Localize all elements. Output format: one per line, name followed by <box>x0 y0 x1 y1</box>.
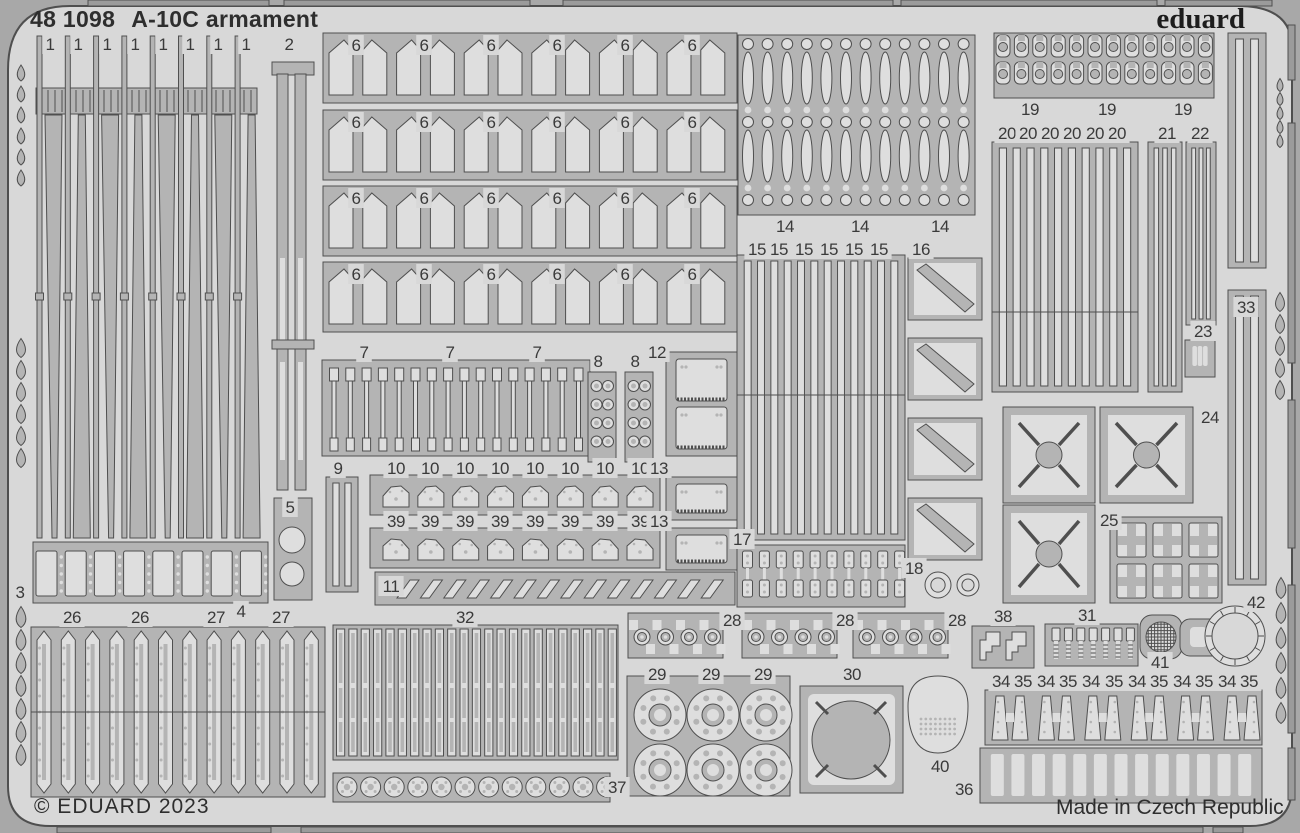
svg-text:28: 28 <box>723 611 741 630</box>
svg-text:26: 26 <box>63 608 81 627</box>
svg-text:38: 38 <box>994 607 1012 626</box>
svg-text:16: 16 <box>912 240 930 259</box>
part-6c <box>323 186 737 256</box>
part-26-27 <box>31 627 325 797</box>
svg-text:29: 29 <box>754 665 772 684</box>
made-in-note: Made in Czech Republic <box>1056 796 1284 820</box>
svg-text:10: 10 <box>421 459 439 478</box>
svg-text:37: 37 <box>608 778 626 797</box>
part-20 <box>992 142 1138 392</box>
svg-text:15: 15 <box>870 240 888 259</box>
svg-text:34: 34 <box>992 672 1010 691</box>
svg-text:34: 34 <box>1082 672 1100 691</box>
svg-text:19: 19 <box>1021 100 1039 119</box>
part-33b <box>1228 290 1266 585</box>
svg-text:10: 10 <box>456 459 474 478</box>
svg-text:6: 6 <box>621 189 630 208</box>
svg-text:10: 10 <box>631 459 649 478</box>
part-12 <box>666 352 737 456</box>
svg-text:2: 2 <box>285 35 294 54</box>
svg-text:10: 10 <box>526 459 544 478</box>
svg-text:6: 6 <box>420 265 429 284</box>
part-14 <box>738 35 975 215</box>
part-30 <box>800 686 903 793</box>
svg-text:20: 20 <box>1108 124 1126 143</box>
part-6b <box>323 110 737 180</box>
svg-text:1: 1 <box>159 35 168 54</box>
svg-text:1: 1 <box>131 35 140 54</box>
part-32 <box>333 625 618 760</box>
svg-text:14: 14 <box>851 217 869 236</box>
svg-text:39: 39 <box>421 512 439 531</box>
svg-text:1: 1 <box>46 35 55 54</box>
svg-text:10: 10 <box>561 459 579 478</box>
svg-text:6: 6 <box>352 189 361 208</box>
svg-text:6: 6 <box>352 265 361 284</box>
svg-text:6: 6 <box>487 189 496 208</box>
part-21 <box>1148 142 1182 392</box>
svg-text:6: 6 <box>688 113 697 132</box>
svg-text:27: 27 <box>207 608 225 627</box>
svg-text:34: 34 <box>1218 672 1236 691</box>
svg-text:13: 13 <box>650 459 668 478</box>
part-31 <box>1045 624 1138 666</box>
part-23 <box>1185 340 1215 377</box>
svg-text:39: 39 <box>491 512 509 531</box>
svg-text:6: 6 <box>553 189 562 208</box>
svg-text:1: 1 <box>103 35 112 54</box>
svg-text:13: 13 <box>650 512 668 531</box>
svg-text:41: 41 <box>1151 653 1169 672</box>
svg-text:5: 5 <box>286 498 295 517</box>
svg-text:33: 33 <box>1237 298 1255 317</box>
part-10 <box>370 475 660 515</box>
svg-text:28: 28 <box>948 611 966 630</box>
svg-text:6: 6 <box>553 265 562 284</box>
svg-text:20: 20 <box>1019 124 1037 143</box>
svg-text:18: 18 <box>905 559 923 578</box>
part-28 <box>628 613 951 658</box>
svg-text:7: 7 <box>360 343 369 362</box>
brand-logo: eduard <box>1156 3 1245 36</box>
svg-text:20: 20 <box>1063 124 1081 143</box>
svg-text:6: 6 <box>352 113 361 132</box>
svg-text:24: 24 <box>1201 408 1219 427</box>
part-29 <box>627 676 792 796</box>
svg-text:10: 10 <box>387 459 405 478</box>
svg-text:7: 7 <box>533 343 542 362</box>
svg-text:27: 27 <box>272 608 290 627</box>
svg-text:29: 29 <box>702 665 720 684</box>
part-6d <box>323 262 737 332</box>
svg-text:1: 1 <box>186 35 195 54</box>
part-7 <box>322 360 590 456</box>
svg-text:8: 8 <box>631 352 640 371</box>
svg-text:20: 20 <box>1041 124 1059 143</box>
svg-text:15: 15 <box>770 240 788 259</box>
part-42 <box>1205 606 1265 666</box>
svg-text:1: 1 <box>74 35 83 54</box>
svg-text:3: 3 <box>16 583 25 602</box>
svg-text:34: 34 <box>1128 672 1146 691</box>
svg-text:4: 4 <box>237 602 246 621</box>
svg-text:14: 14 <box>776 217 794 236</box>
part-13b <box>666 528 737 570</box>
svg-text:6: 6 <box>420 36 429 55</box>
svg-text:6: 6 <box>553 36 562 55</box>
svg-text:6: 6 <box>688 265 697 284</box>
svg-text:35: 35 <box>1195 672 1213 691</box>
svg-text:10: 10 <box>596 459 614 478</box>
svg-text:1: 1 <box>214 35 223 54</box>
svg-text:15: 15 <box>748 240 766 259</box>
svg-text:19: 19 <box>1098 100 1116 119</box>
svg-text:1: 1 <box>242 35 251 54</box>
part-6a <box>323 33 737 103</box>
svg-text:6: 6 <box>420 189 429 208</box>
part-19 <box>994 33 1214 98</box>
svg-text:15: 15 <box>820 240 838 259</box>
svg-text:6: 6 <box>553 113 562 132</box>
svg-text:39: 39 <box>526 512 544 531</box>
svg-text:14: 14 <box>931 217 949 236</box>
svg-text:32: 32 <box>456 608 474 627</box>
part-37 <box>333 773 617 802</box>
svg-text:39: 39 <box>561 512 579 531</box>
photoetch-fret-drawing: 1111111123526262742766666666666666666666… <box>0 0 1300 833</box>
part-15 <box>737 255 905 540</box>
svg-text:42: 42 <box>1247 593 1265 612</box>
part-3 <box>33 542 268 603</box>
svg-text:39: 39 <box>387 512 405 531</box>
svg-text:36: 36 <box>955 780 973 799</box>
svg-text:29: 29 <box>648 665 666 684</box>
svg-text:20: 20 <box>998 124 1016 143</box>
svg-text:15: 15 <box>795 240 813 259</box>
svg-text:35: 35 <box>1150 672 1168 691</box>
svg-text:34: 34 <box>1037 672 1055 691</box>
svg-text:6: 6 <box>688 189 697 208</box>
svg-text:20: 20 <box>1086 124 1104 143</box>
svg-text:34: 34 <box>1173 672 1191 691</box>
part-40 <box>908 676 968 753</box>
svg-text:11: 11 <box>383 577 400 596</box>
svg-text:23: 23 <box>1194 322 1212 341</box>
svg-text:39: 39 <box>456 512 474 531</box>
catalog-number: 48 1098 <box>30 6 115 32</box>
svg-text:25: 25 <box>1100 511 1118 530</box>
part-36 <box>980 748 1262 803</box>
svg-text:6: 6 <box>621 36 630 55</box>
part-39 <box>370 528 660 568</box>
svg-text:17: 17 <box>733 530 751 549</box>
svg-text:26: 26 <box>131 608 149 627</box>
part-13a <box>666 477 737 520</box>
svg-text:6: 6 <box>352 36 361 55</box>
svg-text:40: 40 <box>931 757 949 776</box>
svg-text:21: 21 <box>1158 124 1176 143</box>
part-33 <box>1228 33 1266 268</box>
svg-text:8: 8 <box>594 352 603 371</box>
svg-text:6: 6 <box>487 265 496 284</box>
svg-text:28: 28 <box>836 611 854 630</box>
svg-text:6: 6 <box>621 265 630 284</box>
part-11 <box>375 572 735 605</box>
svg-text:6: 6 <box>621 113 630 132</box>
svg-text:35: 35 <box>1105 672 1123 691</box>
part-22 <box>1186 142 1216 325</box>
svg-text:9: 9 <box>334 459 343 478</box>
svg-text:6: 6 <box>688 36 697 55</box>
svg-text:31: 31 <box>1078 606 1096 625</box>
part-9 <box>326 477 358 592</box>
svg-text:35: 35 <box>1014 672 1032 691</box>
sheet-title: 48 1098A-10C armament <box>30 6 318 33</box>
product-name: A-10C armament <box>131 6 318 32</box>
svg-text:7: 7 <box>446 343 455 362</box>
svg-text:39: 39 <box>596 512 614 531</box>
svg-text:39: 39 <box>631 512 649 531</box>
svg-text:19: 19 <box>1174 100 1192 119</box>
svg-text:12: 12 <box>648 343 666 362</box>
part-34-35 <box>985 690 1262 745</box>
svg-text:35: 35 <box>1240 672 1258 691</box>
copyright-note: © EDUARD 2023 <box>34 795 210 819</box>
part-38 <box>972 626 1034 668</box>
fret-sheet: 1111111123526262742766666666666666666666… <box>0 0 1300 833</box>
part-17 <box>737 545 905 607</box>
svg-text:35: 35 <box>1059 672 1077 691</box>
svg-text:15: 15 <box>845 240 863 259</box>
svg-text:30: 30 <box>843 665 861 684</box>
svg-text:6: 6 <box>487 36 496 55</box>
svg-text:22: 22 <box>1191 124 1209 143</box>
part-25 <box>1110 517 1222 603</box>
svg-text:6: 6 <box>420 113 429 132</box>
svg-text:10: 10 <box>491 459 509 478</box>
svg-text:6: 6 <box>487 113 496 132</box>
